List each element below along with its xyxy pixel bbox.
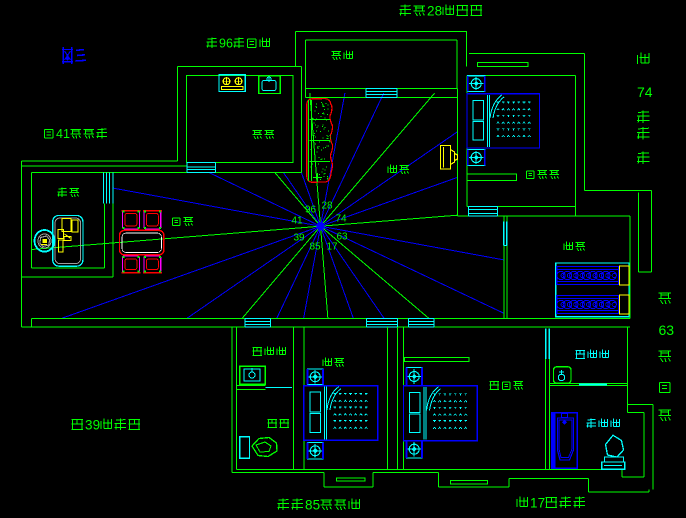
svg-text:9: 9 <box>93 418 101 433</box>
svg-text:74: 74 <box>336 214 348 225</box>
svg-text:17: 17 <box>327 242 339 253</box>
svg-text:3: 3 <box>85 418 93 433</box>
svg-text:41: 41 <box>292 216 304 227</box>
svg-text:5: 5 <box>313 498 321 513</box>
svg-text:96: 96 <box>305 205 317 216</box>
svg-text:9: 9 <box>219 37 226 51</box>
svg-text:63: 63 <box>337 232 349 243</box>
svg-text:39: 39 <box>294 233 306 244</box>
svg-text:85: 85 <box>310 242 322 253</box>
svg-text:4: 4 <box>56 127 63 141</box>
svg-text:28: 28 <box>322 201 334 212</box>
svg-text:74: 74 <box>637 84 653 100</box>
svg-text:1: 1 <box>530 496 538 511</box>
svg-text:8: 8 <box>435 4 443 19</box>
svg-text:63: 63 <box>659 322 675 338</box>
svg-text:6: 6 <box>226 37 233 51</box>
svg-text:1: 1 <box>63 127 70 141</box>
svg-text:7: 7 <box>538 496 546 511</box>
svg-text:2: 2 <box>427 4 435 19</box>
svg-text:8: 8 <box>305 498 313 513</box>
